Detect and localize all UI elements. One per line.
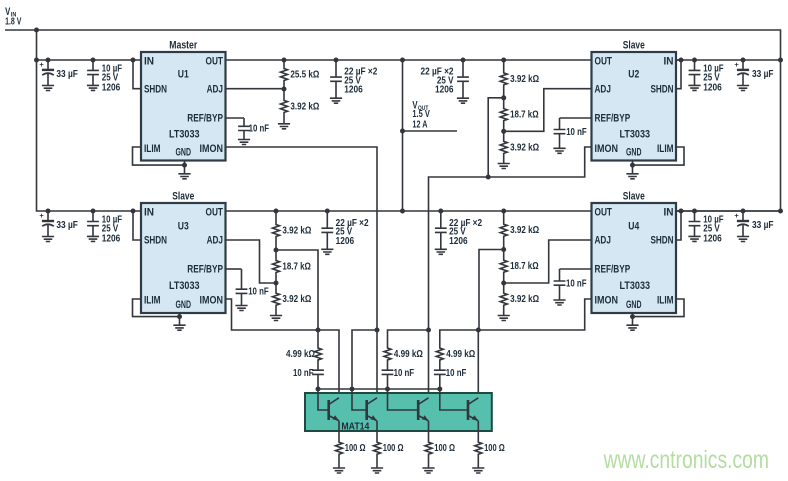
svg-text:1206: 1206 (449, 236, 468, 247)
svg-text:+: + (734, 60, 739, 69)
svg-text:+: + (734, 211, 739, 220)
svg-text:ADJ: ADJ (595, 234, 611, 246)
svg-text:ADJ: ADJ (595, 83, 611, 95)
svg-text:100 Ω: 100 Ω (434, 443, 455, 454)
svg-text:ILIM: ILIM (657, 294, 674, 306)
svg-text:10 nF: 10 nF (394, 368, 415, 379)
svg-text:10 nF: 10 nF (249, 124, 270, 135)
svg-text:OUT: OUT (595, 56, 613, 68)
svg-text:1206: 1206 (435, 85, 454, 96)
svg-text:4.99 kΩ: 4.99 kΩ (394, 349, 423, 360)
svg-text:33 µF: 33 µF (56, 220, 78, 231)
svg-text:IN: IN (144, 56, 154, 68)
svg-text:IMON: IMON (595, 294, 619, 306)
svg-text:GND: GND (176, 299, 192, 311)
svg-text:U4: U4 (628, 221, 640, 233)
svg-text:LT3033: LT3033 (620, 280, 651, 292)
svg-text:Master: Master (169, 39, 198, 51)
svg-text:MAT14: MAT14 (341, 421, 369, 432)
svg-text:OUT: OUT (206, 207, 224, 219)
svg-text:REF/BYP: REF/BYP (187, 112, 223, 124)
svg-text:10 nF: 10 nF (248, 287, 269, 298)
svg-text:10 nF: 10 nF (566, 279, 587, 290)
svg-text:REF/BYP: REF/BYP (595, 112, 631, 124)
svg-text:SHDN: SHDN (651, 83, 674, 95)
svg-text:4.99 kΩ: 4.99 kΩ (446, 349, 475, 360)
svg-text:3.92 kΩ: 3.92 kΩ (282, 294, 311, 305)
svg-text:1206: 1206 (703, 82, 722, 93)
svg-text:SHDN: SHDN (651, 234, 674, 246)
svg-text:12 A: 12 A (412, 119, 427, 130)
svg-text:1206: 1206 (703, 233, 722, 244)
svg-text:ILIM: ILIM (657, 143, 674, 155)
svg-text:100 Ω: 100 Ω (383, 443, 404, 454)
svg-text:100 Ω: 100 Ω (345, 443, 366, 454)
svg-text:3.92 kΩ: 3.92 kΩ (510, 294, 539, 305)
svg-text:IMON: IMON (200, 143, 224, 155)
svg-text:+: + (39, 60, 44, 69)
svg-text:IN: IN (664, 207, 674, 219)
svg-text:SHDN: SHDN (144, 234, 167, 246)
svg-text:10 nF: 10 nF (566, 127, 587, 138)
svg-text:REF/BYP: REF/BYP (187, 263, 223, 275)
svg-text:1206: 1206 (344, 85, 363, 96)
svg-text:Slave: Slave (623, 190, 645, 202)
svg-text:GND: GND (626, 299, 642, 311)
svg-text:GND: GND (176, 147, 192, 159)
svg-text:18.7 kΩ: 18.7 kΩ (510, 110, 538, 121)
svg-text:Slave: Slave (623, 39, 645, 51)
svg-text:4.99 kΩ: 4.99 kΩ (286, 349, 315, 360)
svg-text:3.92 kΩ: 3.92 kΩ (282, 225, 311, 236)
svg-text:GND: GND (626, 147, 642, 159)
svg-text:U2: U2 (628, 69, 639, 81)
svg-text:3.92 kΩ: 3.92 kΩ (290, 101, 319, 112)
svg-text:U3: U3 (178, 221, 189, 233)
svg-text:25.5 kΩ: 25.5 kΩ (290, 69, 319, 80)
svg-text:LT3033: LT3033 (169, 280, 200, 292)
svg-text:3.92 kΩ: 3.92 kΩ (510, 142, 539, 153)
svg-text:10 nF: 10 nF (293, 368, 314, 379)
svg-text:33 µF: 33 µF (56, 69, 78, 80)
svg-text:U1: U1 (178, 69, 189, 81)
svg-text:OUT: OUT (595, 207, 613, 219)
svg-text:33 µF: 33 µF (752, 69, 774, 80)
svg-text:+: + (39, 211, 44, 220)
svg-text:Slave: Slave (172, 190, 194, 202)
svg-text:18.7 kΩ: 18.7 kΩ (510, 261, 538, 272)
svg-text:LT3033: LT3033 (620, 129, 651, 141)
svg-text:100 Ω: 100 Ω (484, 443, 505, 454)
svg-text:LT3033: LT3033 (169, 129, 200, 141)
svg-text:3.92 kΩ: 3.92 kΩ (510, 225, 539, 236)
svg-text:REF/BYP: REF/BYP (595, 263, 631, 275)
svg-text:www.cntronics.com: www.cntronics.com (603, 446, 769, 474)
svg-text:33 µF: 33 µF (752, 220, 774, 231)
svg-text:ADJ: ADJ (207, 83, 223, 95)
svg-text:IMON: IMON (595, 143, 619, 155)
svg-text:1.8 V: 1.8 V (5, 16, 21, 27)
svg-text:3.92 kΩ: 3.92 kΩ (510, 74, 539, 85)
svg-text:OUT: OUT (206, 56, 224, 68)
svg-text:ADJ: ADJ (207, 234, 223, 246)
svg-text:SHDN: SHDN (144, 83, 167, 95)
svg-text:18.7 kΩ: 18.7 kΩ (282, 261, 311, 272)
svg-text:IN: IN (664, 56, 674, 68)
svg-text:IMON: IMON (200, 294, 224, 306)
svg-text:IN: IN (144, 207, 154, 219)
svg-text:1206: 1206 (102, 233, 121, 244)
svg-text:1206: 1206 (102, 82, 121, 93)
svg-text:10 nF: 10 nF (446, 368, 467, 379)
svg-text:ILIM: ILIM (144, 294, 161, 306)
svg-text:1206: 1206 (336, 236, 355, 247)
svg-text:ILIM: ILIM (144, 143, 161, 155)
